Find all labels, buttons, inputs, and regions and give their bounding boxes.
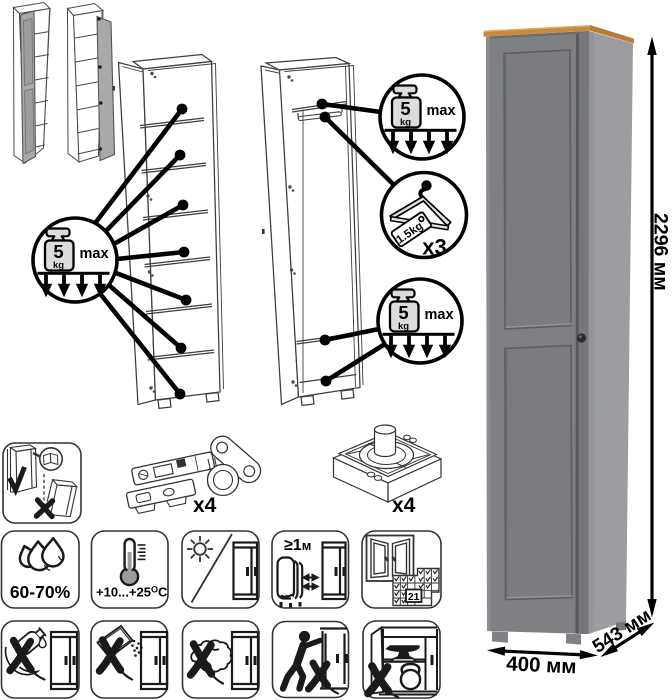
svg-text:x4: x4 xyxy=(392,494,416,517)
svg-text:60-70%: 60-70% xyxy=(10,582,71,602)
svg-text:x3: x3 xyxy=(422,235,446,260)
svg-text:2296 мм: 2296 мм xyxy=(650,213,672,291)
svg-text:≥1м: ≥1м xyxy=(284,537,311,554)
svg-text:21: 21 xyxy=(408,591,420,603)
svg-text:400 мм: 400 мм xyxy=(506,652,577,678)
svg-text:+10...+25OC: +10...+25OC xyxy=(96,584,168,599)
svg-text:x4: x4 xyxy=(193,494,217,517)
